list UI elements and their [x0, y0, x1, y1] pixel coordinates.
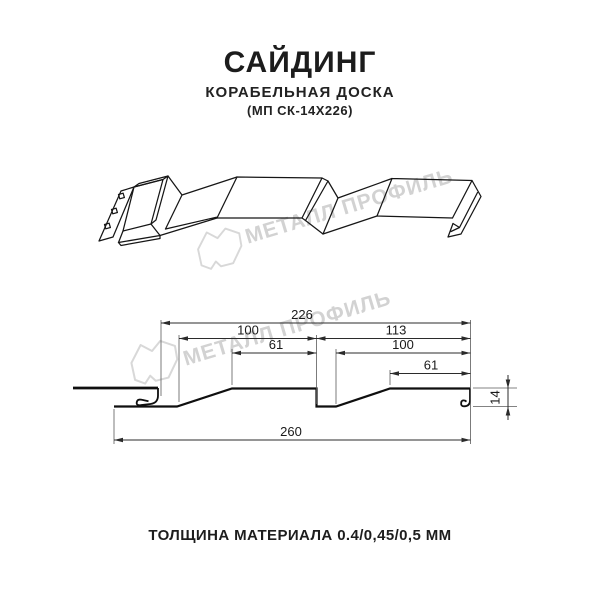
- dim-panel1-flat-label: 61: [269, 337, 283, 352]
- technical-drawing: 226 100 113 61 100 61 260 14: [0, 0, 600, 600]
- dim-profile-height-label: 14: [488, 390, 503, 404]
- catalog-product-sheet: МЕТАЛЛ ПРОФИЛЬ МЕТАЛЛ ПРОФИЛЬ САЙДИНГ КО…: [0, 0, 600, 600]
- dim-total-width-label: 260: [280, 424, 302, 439]
- dimension-lines: [114, 323, 508, 440]
- cross-section-drawing: [73, 388, 470, 407]
- dim-panel1-width-label: 100: [237, 323, 259, 338]
- dim-panel2-flat-label: 61: [424, 358, 438, 373]
- dim-overall-cover-width-label: 226: [291, 307, 313, 322]
- dim-panel2-width-label: 113: [386, 323, 407, 338]
- profile-3d-drawing: [99, 176, 481, 246]
- dim-panel2-inner-label: 100: [392, 337, 414, 352]
